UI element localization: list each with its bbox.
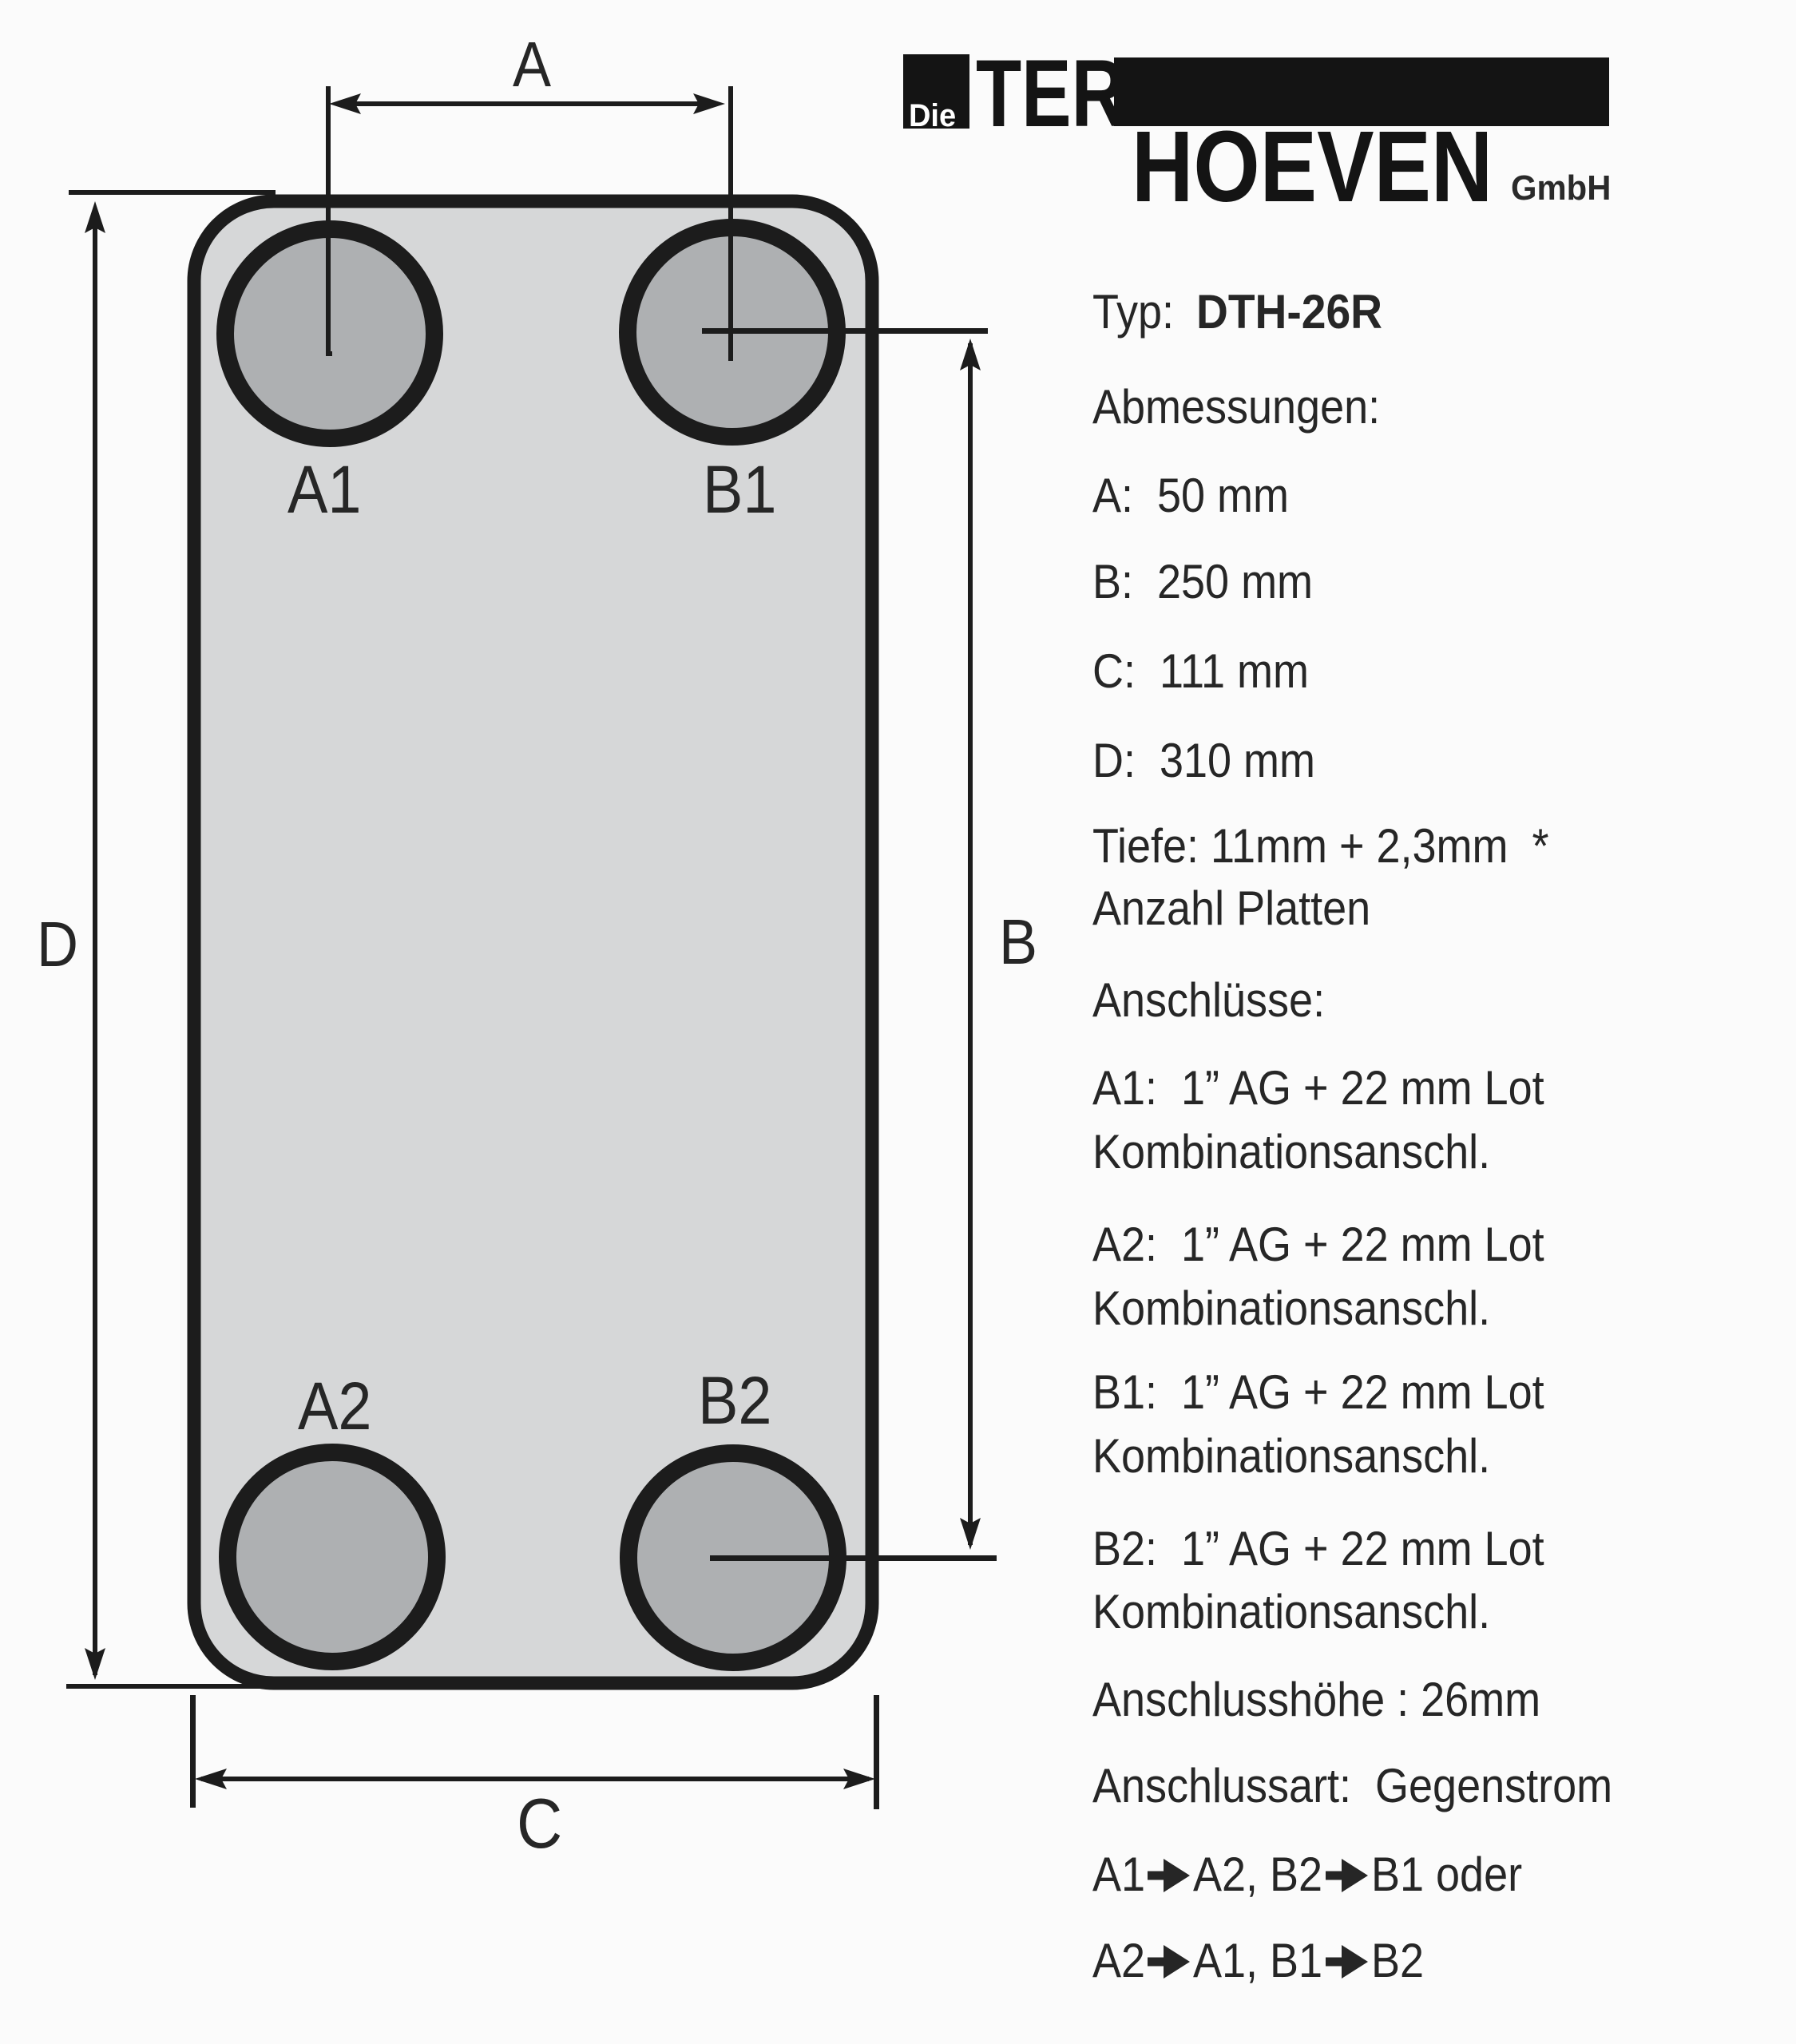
svg-text:HOEVEN: HOEVEN — [1132, 110, 1493, 223]
svg-text:D: D — [37, 909, 78, 980]
svg-text:Anzahl Platten: Anzahl Platten — [1092, 881, 1370, 935]
svg-text:GmbH: GmbH — [1511, 168, 1611, 208]
svg-text:B1 oder: B1 oder — [1371, 1848, 1522, 1901]
svg-text:Kombinationsanschl.: Kombinationsanschl. — [1092, 1125, 1490, 1178]
svg-text:B2: B2 — [1371, 1934, 1424, 1987]
svg-text:Abmessungen:: Abmessungen: — [1092, 380, 1380, 434]
svg-text:Anschlussart: Gegenstrom: Anschlussart: Gegenstrom — [1092, 1759, 1612, 1812]
svg-text:A2: 1” AG + 22 mm Lot: A2: 1” AG + 22 mm Lot — [1092, 1218, 1544, 1271]
svg-text:Die: Die — [909, 98, 956, 133]
svg-text:A: 50 mm: A: 50 mm — [1092, 469, 1289, 522]
svg-text:A1: A1 — [287, 452, 361, 527]
svg-text:A1, B1: A1, B1 — [1193, 1934, 1322, 1987]
svg-text:Kombinationsanschl.: Kombinationsanschl. — [1092, 1585, 1490, 1638]
svg-text:D: 310 mm: D: 310 mm — [1092, 734, 1315, 787]
svg-text:Tiefe: 11mm + 2,3mm *: Tiefe: 11mm + 2,3mm * — [1092, 819, 1549, 873]
svg-text:A: A — [513, 30, 551, 101]
svg-text:A2, B2: A2, B2 — [1193, 1848, 1322, 1901]
svg-text:B: 250 mm: B: 250 mm — [1092, 555, 1313, 608]
svg-text:Kombinationsanschl.: Kombinationsanschl. — [1092, 1281, 1490, 1335]
svg-text:A1: 1” AG + 22 mm Lot: A1: 1” AG + 22 mm Lot — [1092, 1061, 1544, 1115]
svg-text:C: 111 mm: C: 111 mm — [1092, 644, 1309, 698]
svg-text:C: C — [517, 1784, 562, 1863]
svg-text:B2: B2 — [698, 1363, 771, 1438]
svg-text:DTH-26R: DTH-26R — [1196, 286, 1382, 339]
svg-text:B2: 1” AG + 22 mm Lot: B2: 1” AG + 22 mm Lot — [1092, 1522, 1544, 1575]
svg-text:Typ:: Typ: — [1092, 285, 1174, 339]
svg-text:Anschlusshöhe : 26mm: Anschlusshöhe : 26mm — [1092, 1673, 1540, 1726]
svg-text:B1: B1 — [703, 452, 776, 527]
svg-text:A2: A2 — [1092, 1934, 1145, 1987]
svg-text:Anschlüsse:: Anschlüsse: — [1092, 973, 1325, 1027]
svg-text:TER: TER — [976, 40, 1125, 147]
svg-text:B1: 1” AG + 22 mm Lot: B1: 1” AG + 22 mm Lot — [1092, 1365, 1544, 1419]
svg-text:A2: A2 — [298, 1369, 371, 1444]
svg-text:Kombinationsanschl.: Kombinationsanschl. — [1092, 1429, 1490, 1483]
svg-text:B: B — [999, 907, 1037, 978]
svg-text:A1: A1 — [1092, 1848, 1145, 1901]
